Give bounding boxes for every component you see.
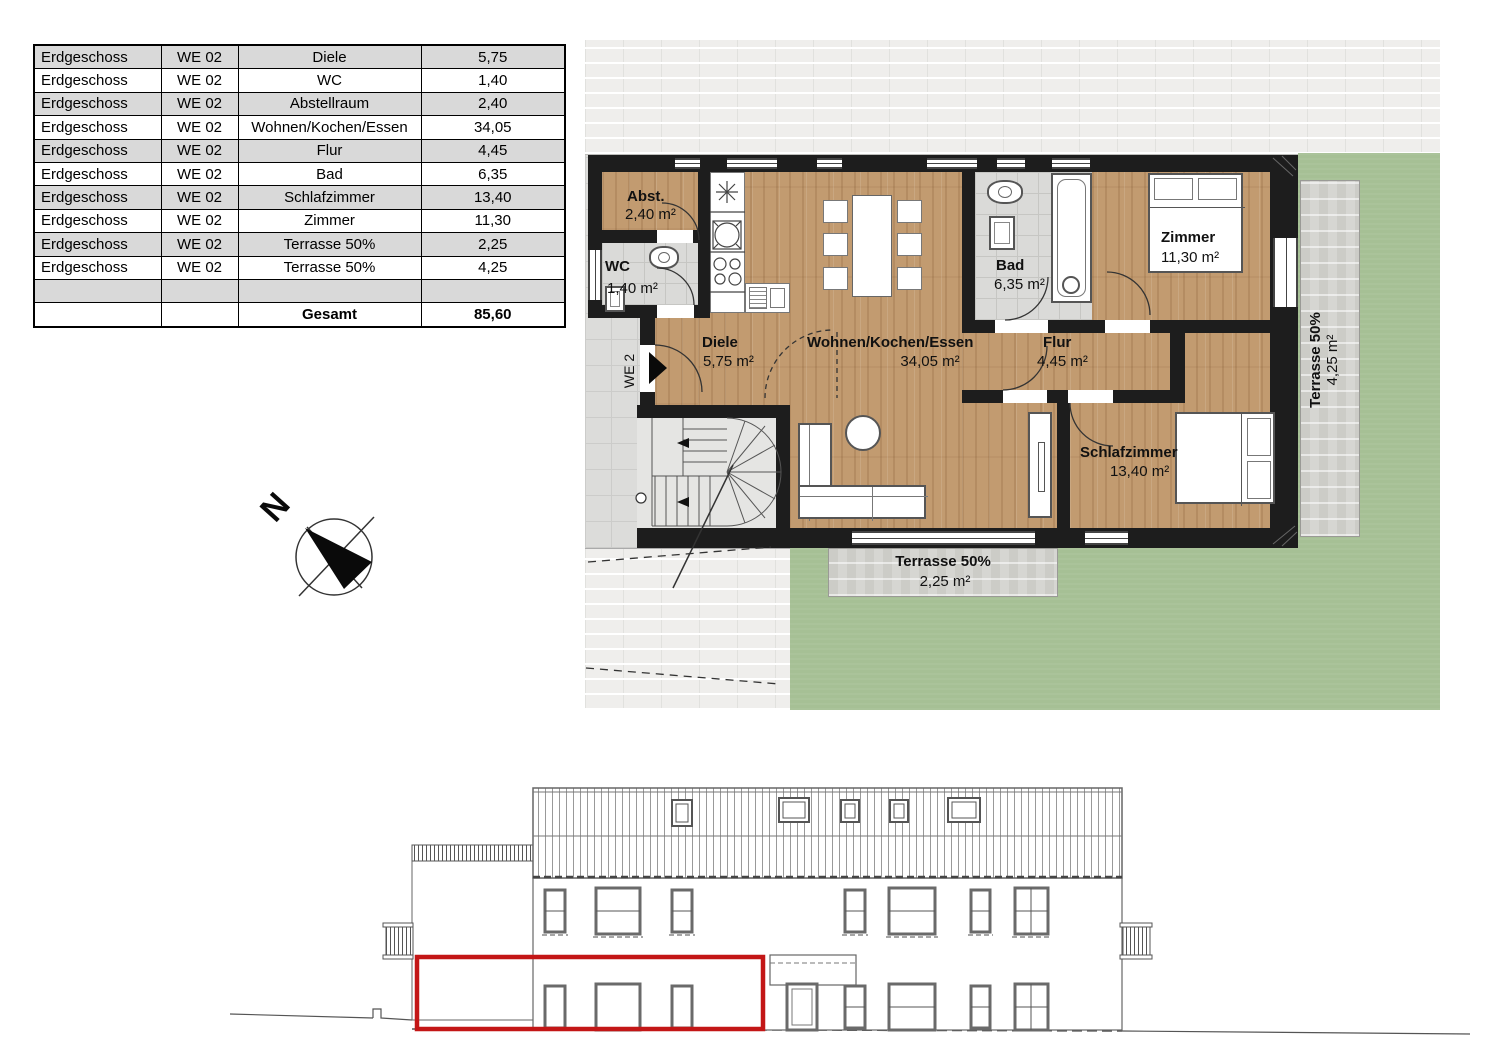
table-row: ErdgeschossWE 02Abstellraum2,40 (34, 92, 565, 115)
table-cell: 2,25 (421, 233, 565, 256)
roof (533, 788, 1122, 878)
room-label-diele: Diele (702, 334, 738, 351)
terrace-south-area: 2,25 m² (865, 573, 1025, 590)
table-cell: 1,40 (421, 69, 565, 92)
table-cell: WE 02 (161, 256, 238, 279)
table-cell: Gesamt (238, 303, 421, 327)
table-row: ErdgeschossWE 02Zimmer11,30 (34, 209, 565, 232)
table-cell: WE 02 (161, 69, 238, 92)
table-cell (161, 303, 238, 327)
table-cell: Diele (238, 45, 421, 69)
balcony-left (386, 927, 413, 955)
building-elevation (230, 780, 1470, 1055)
table-cell: WE 02 (161, 162, 238, 185)
table-cell: 4,45 (421, 139, 565, 162)
table-row: Gesamt85,60 (34, 303, 565, 327)
table-cell: Erdgeschoss (34, 162, 161, 185)
terrace-east-area: 4,25 m² (1324, 270, 1341, 450)
table-cell: Erdgeschoss (34, 116, 161, 139)
ground-line-left (230, 1009, 412, 1020)
table-cell: Wohnen/Kochen/Essen (238, 116, 421, 139)
table-row: ErdgeschossWE 02Bad6,35 (34, 162, 565, 185)
area-table: ErdgeschossWE 02Diele5,75ErdgeschossWE 0… (33, 44, 566, 328)
table-cell (421, 279, 565, 302)
table-cell: 85,60 (421, 303, 565, 327)
table-cell: WE 02 (161, 116, 238, 139)
floorplan-document: ErdgeschossWE 02Diele5,75ErdgeschossWE 0… (0, 0, 1500, 1061)
table-cell: 2,40 (421, 92, 565, 115)
table-row: ErdgeschossWE 02Terrasse 50%2,25 (34, 233, 565, 256)
table-cell: 6,35 (421, 162, 565, 185)
table-row: ErdgeschossWE 02Diele5,75 (34, 45, 565, 69)
table-cell: Erdgeschoss (34, 45, 161, 69)
unit-label-group: WE 2 (600, 340, 660, 400)
table-cell: Flur (238, 139, 421, 162)
terrace-east-label: Terrasse 50% (1307, 270, 1324, 450)
room-label-wc: WC (605, 258, 630, 275)
table-cell: Bad (238, 162, 421, 185)
room-area-diele: 5,75 m² (703, 353, 754, 370)
floor-plan: Abst. 2,40 m² WC 1,40 m² Diele 5,75 m² W… (585, 40, 1462, 710)
table-cell: Schlafzimmer (238, 186, 421, 209)
table-cell (238, 279, 421, 302)
room-area-wohnen: 34,05 m² (890, 353, 970, 370)
room-area-wc: 1,40 m² (607, 280, 658, 297)
room-area-schlafzimmer: 13,40 m² (1110, 463, 1169, 480)
entrance-canopy (770, 955, 856, 985)
terrace-south-label: Terrasse 50% (828, 553, 1058, 570)
table-cell: Abstellraum (238, 92, 421, 115)
table-cell: 11,30 (421, 209, 565, 232)
room-label-abst: Abst. (627, 188, 665, 205)
table-cell: Erdgeschoss (34, 69, 161, 92)
room-label-flur: Flur (1043, 334, 1071, 351)
compass-north-arrow: N (255, 480, 385, 605)
terrace-east-label-group: Terrasse 50% 4,25 m² (1289, 280, 1369, 440)
table-row: ErdgeschossWE 02Flur4,45 (34, 139, 565, 162)
balcony-right (1123, 927, 1150, 955)
table-cell: WE 02 (161, 92, 238, 115)
unit-label: WE 2 (621, 336, 637, 406)
table-row: ErdgeschossWE 02Terrasse 50%4,25 (34, 256, 565, 279)
table-cell: Erdgeschoss (34, 186, 161, 209)
table-cell: WE 02 (161, 186, 238, 209)
table-cell: WE 02 (161, 233, 238, 256)
table-cell (34, 279, 161, 302)
room-label-schlafzimmer: Schlafzimmer (1080, 444, 1178, 461)
table-row: ErdgeschossWE 02WC1,40 (34, 69, 565, 92)
table-cell: 4,25 (421, 256, 565, 279)
left-wing-parapet (412, 845, 533, 861)
room-area-zimmer: 11,30 m² (1161, 249, 1219, 266)
ground-line-right (1122, 1031, 1470, 1034)
table-cell: 34,05 (421, 116, 565, 139)
room-label-zimmer: Zimmer (1161, 229, 1215, 246)
table-row: ErdgeschossWE 02Schlafzimmer13,40 (34, 186, 565, 209)
table-cell (161, 279, 238, 302)
table-row (34, 279, 565, 302)
table-cell: Erdgeschoss (34, 92, 161, 115)
table-cell (34, 303, 161, 327)
table-cell: Erdgeschoss (34, 256, 161, 279)
table-cell: Terrasse 50% (238, 233, 421, 256)
table-cell: Terrasse 50% (238, 256, 421, 279)
compass-n-label: N (255, 486, 298, 530)
room-area-flur: 4,45 m² (1037, 353, 1088, 370)
table-cell: WE 02 (161, 209, 238, 232)
room-label-wohnen: Wohnen/Kochen/Essen (807, 334, 960, 351)
room-area-abst: 2,40 m² (625, 206, 676, 223)
table-cell: WE 02 (161, 139, 238, 162)
room-label-bad: Bad (996, 257, 1024, 274)
table-cell: Erdgeschoss (34, 209, 161, 232)
table-row: ErdgeschossWE 02Wohnen/Kochen/Essen34,05 (34, 116, 565, 139)
left-wing-wall (412, 861, 533, 1020)
table-cell: Zimmer (238, 209, 421, 232)
table-cell: WE 02 (161, 45, 238, 69)
table-cell: WC (238, 69, 421, 92)
room-area-bad: 6,35 m² (994, 276, 1045, 293)
table-cell: 13,40 (421, 186, 565, 209)
table-cell: Erdgeschoss (34, 233, 161, 256)
table-cell: Erdgeschoss (34, 139, 161, 162)
table-cell: 5,75 (421, 45, 565, 69)
